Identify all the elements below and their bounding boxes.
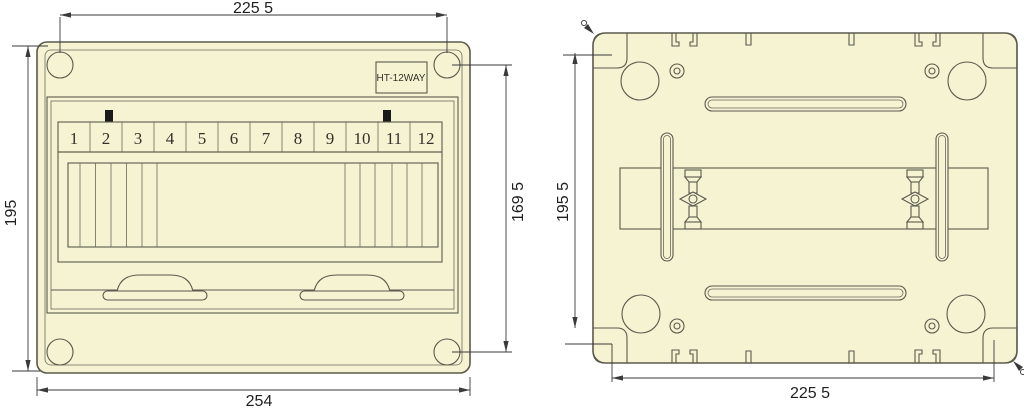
busbar-marker [383, 110, 391, 122]
front-case-outline [37, 42, 470, 373]
front-view: HT-12WAY 1 2 3 4 5 6 7 8 9 10 11 12 [37, 42, 470, 373]
back-case-outline [593, 33, 1017, 363]
back-view [581, 20, 1024, 374]
busbar-marker [105, 110, 113, 122]
technical-drawing: HT-12WAY 1 2 3 4 5 6 7 8 9 10 11 12 [0, 0, 1024, 408]
